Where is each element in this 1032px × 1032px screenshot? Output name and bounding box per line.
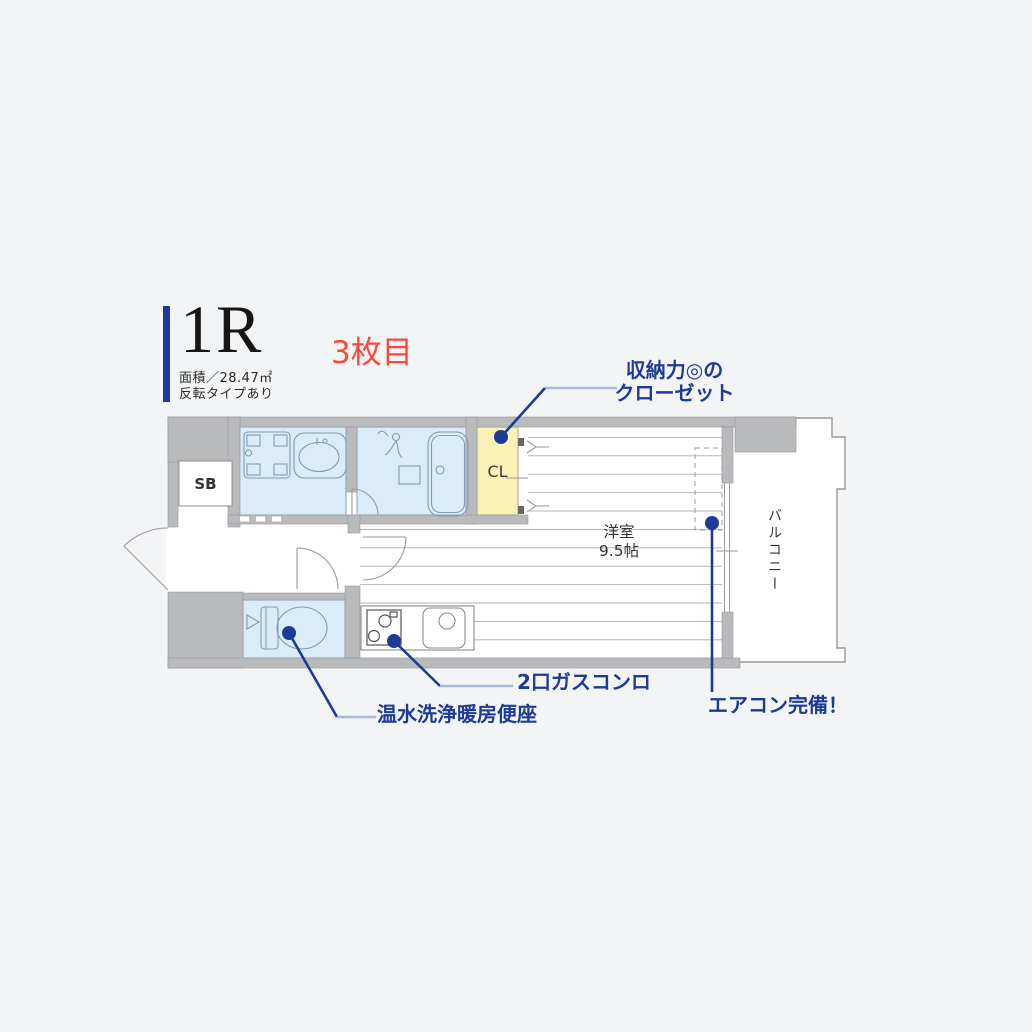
closet-label: CL — [477, 427, 518, 515]
callout-toilet: 温水洗浄暖房便座 — [377, 703, 537, 726]
main-room-size: 9.5帖 — [599, 542, 639, 560]
callout-aircon: エアコン完備！ — [708, 694, 848, 717]
balcony-label: バルコニー — [764, 508, 784, 618]
floorplan-drawing — [0, 0, 1032, 1032]
photo-index-badge: 3枚目 — [331, 327, 413, 372]
kitchen-sink-icon — [423, 608, 465, 648]
floorplan-page: 1R 3枚目 面積／28.47㎡ 反転タイプあり SB CL 洋室 9.5帖 バ… — [0, 0, 1032, 1032]
balcony-area — [733, 418, 845, 662]
callout-closet: 収納力◎の クローゼット — [592, 359, 757, 405]
main-room-name: 洋室 — [603, 523, 634, 541]
callout-closet-line1: 収納力◎の — [626, 358, 723, 382]
shoe-box-label: SB — [179, 461, 232, 506]
unit-type-title: 1R — [180, 292, 263, 366]
accent-bar — [163, 306, 170, 402]
main-room-label: 洋室 9.5帖 — [569, 523, 669, 561]
washroom-area — [238, 427, 346, 515]
callout-closet-line2: クローゼット — [615, 381, 735, 405]
entrance-door-arc — [124, 528, 168, 590]
area-text: 面積／28.47㎡ — [179, 371, 273, 387]
kitchen-counter — [361, 606, 474, 650]
callout-stove: 2口ガスコンロ — [517, 671, 651, 694]
reversed-type-note: 反転タイプあり — [179, 387, 274, 403]
bathroom-area — [357, 427, 466, 515]
